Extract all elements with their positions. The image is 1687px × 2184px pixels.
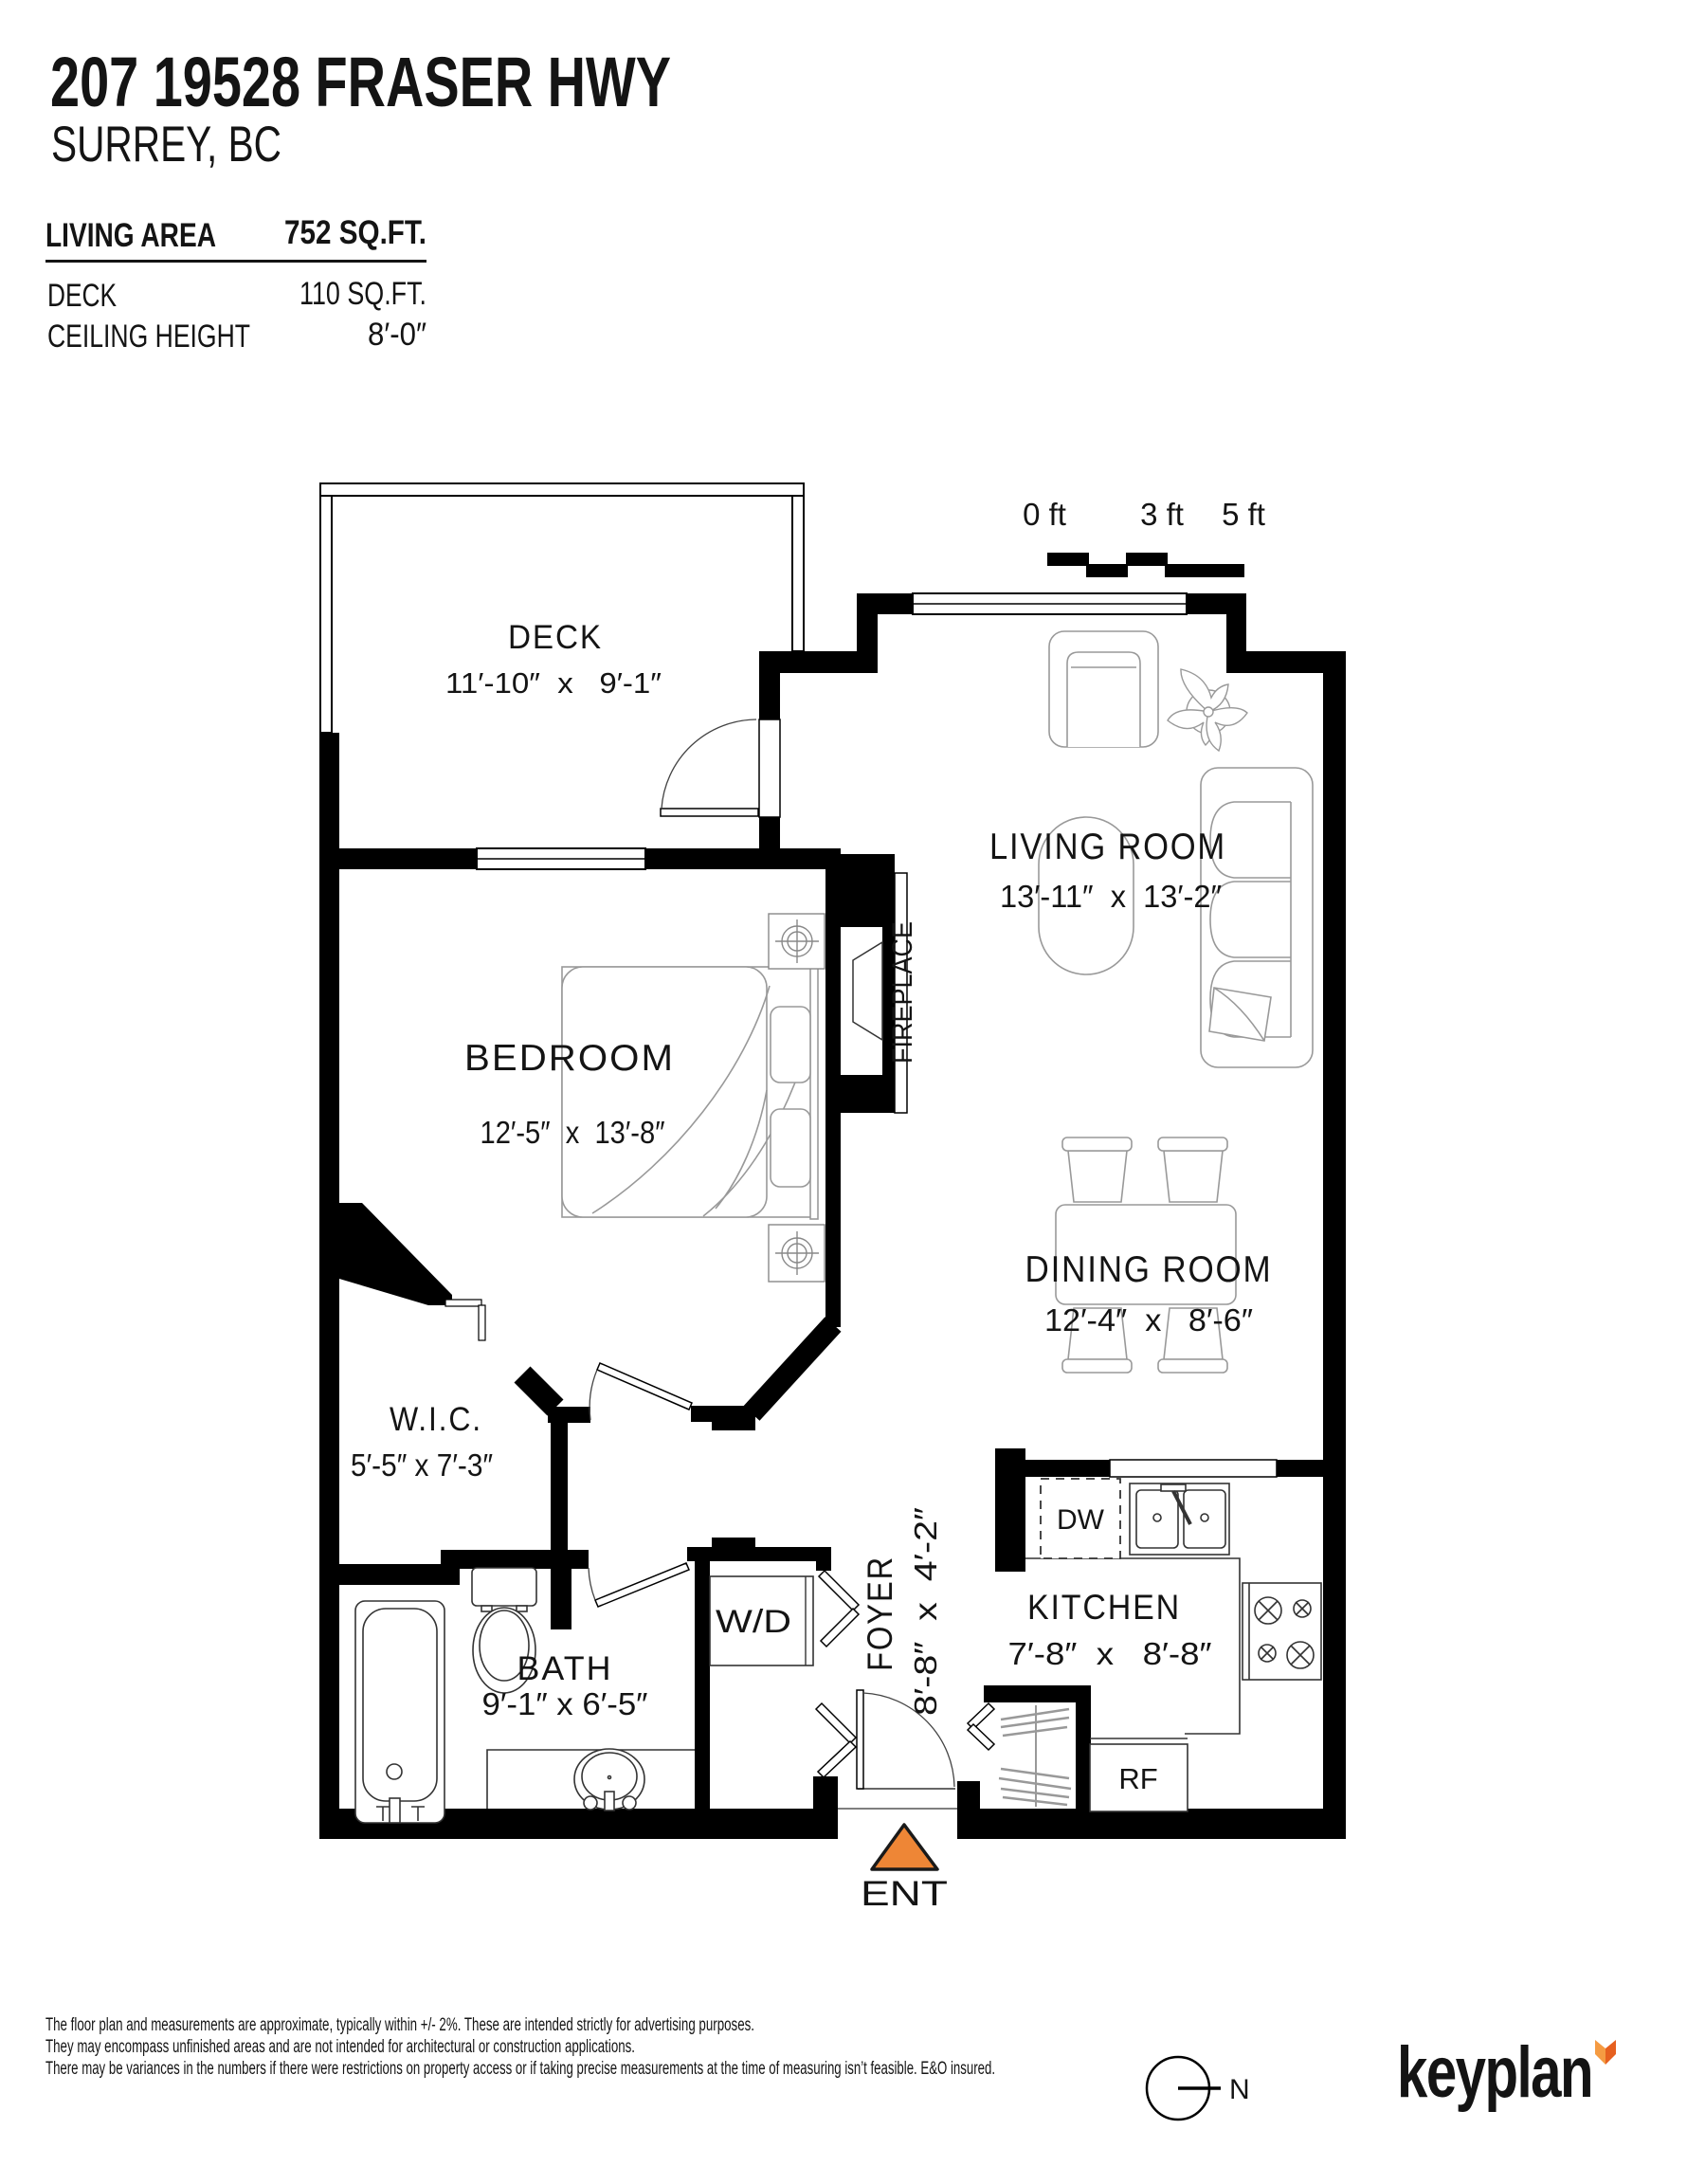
svg-text:CEILING HEIGHT: CEILING HEIGHT: [47, 318, 250, 355]
svg-text:W.I.C.: W.I.C.: [390, 1401, 482, 1438]
svg-text:LIVING ROOM: LIVING ROOM: [989, 827, 1226, 867]
svg-text:3 ft: 3 ft: [1140, 497, 1184, 532]
svg-text:The floor plan and measurement: The floor plan and measurements are appr…: [45, 2015, 754, 2035]
svg-text:11′-10″ x 9′-1″: 11′-10″ x 9′-1″: [445, 666, 662, 700]
svg-text:752 SQ.FT.: 752 SQ.FT.: [284, 214, 426, 251]
svg-text:There may be variances in the: There may be variances in the numbers if…: [45, 2059, 995, 2079]
svg-text:N: N: [1229, 2074, 1250, 2105]
svg-text:13′-11″ x 13′-2″: 13′-11″ x 13′-2″: [1000, 879, 1222, 914]
svg-text:9′-1″ x 6′-5″: 9′-1″ x 6′-5″: [482, 1686, 648, 1721]
svg-text:12′-5″ x 13′-8″: 12′-5″ x 13′-8″: [481, 1115, 665, 1150]
svg-text:BEDROOM: BEDROOM: [464, 1038, 675, 1079]
svg-text:LIVING AREA: LIVING AREA: [45, 217, 216, 254]
svg-text:DECK: DECK: [508, 619, 603, 656]
svg-text:RF: RF: [1118, 1762, 1157, 1795]
svg-text:DINING ROOM: DINING ROOM: [1025, 1249, 1273, 1290]
svg-text:DW: DW: [1057, 1504, 1105, 1536]
svg-text:5′-5″ x 7′-3″: 5′-5″ x 7′-3″: [351, 1447, 493, 1483]
svg-text:110 SQ.FT.: 110 SQ.FT.: [299, 276, 426, 312]
svg-text:They may encompass unfinished: They may encompass unfinished areas and …: [45, 2037, 635, 2057]
svg-text:7′-8″ x 8′-8″: 7′-8″ x 8′-8″: [1008, 1636, 1212, 1671]
svg-text:FIREPLACE: FIREPLACE: [887, 921, 918, 1064]
svg-text:BATH: BATH: [517, 1650, 613, 1687]
svg-text:207 19528 FRASER HWY: 207 19528 FRASER HWY: [50, 43, 671, 121]
svg-text:0 ft: 0 ft: [1023, 497, 1066, 532]
svg-text:12′-4″ x 8′-6″: 12′-4″ x 8′-6″: [1044, 1302, 1253, 1338]
svg-text:SURREY, BC: SURREY, BC: [51, 117, 281, 173]
svg-text:ENT: ENT: [861, 1874, 948, 1913]
svg-text:keyplan: keyplan: [1397, 2032, 1592, 2113]
svg-text:8′-8″ x 4′-2″: 8′-8″ x 4′-2″: [908, 1507, 943, 1716]
svg-text:KITCHEN: KITCHEN: [1027, 1588, 1181, 1627]
svg-text:W/D: W/D: [716, 1604, 791, 1640]
svg-text:5 ft: 5 ft: [1222, 497, 1265, 532]
svg-text:DECK: DECK: [47, 278, 117, 314]
svg-text:FOYER: FOYER: [861, 1556, 899, 1671]
svg-text:8′-0″: 8′-0″: [368, 317, 426, 353]
